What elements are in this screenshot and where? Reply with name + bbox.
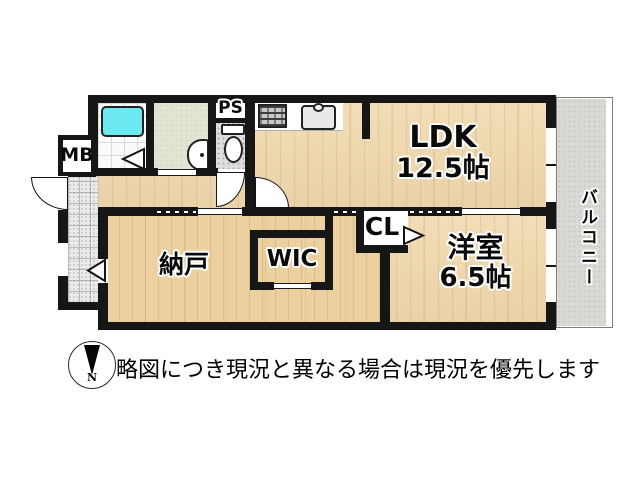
wall-western-left [380, 245, 390, 330]
western-room-label: 洋室 6.5帖 [408, 233, 543, 292]
toilet-tank [221, 124, 245, 135]
entrance-window [58, 241, 68, 278]
wall-mid-d [520, 207, 556, 216]
wall-hall-b [196, 168, 218, 176]
wall-bath-wash [146, 95, 154, 176]
wall-wic-bottom-a [250, 282, 274, 290]
bath-folding-door-icon [118, 147, 146, 171]
washroom-door-opening [158, 169, 196, 176]
storage-sliding-opening [155, 207, 198, 216]
western-room-size: 6.5帖 [408, 264, 543, 293]
balcony-label: バルコニー [568, 158, 596, 318]
wic-opening [274, 283, 311, 289]
floor-plan: LDK 12.5帖 洋室 6.5帖 納戸 WIC CL PS MB バルコニー … [0, 0, 640, 480]
wall-top [88, 95, 556, 103]
storage-window-opening [198, 208, 242, 215]
ldk-size: 12.5帖 [368, 154, 518, 184]
meter-box-label: MB [58, 145, 96, 166]
washbasin-drain [200, 153, 204, 157]
pipe-space-label: PS [211, 99, 250, 118]
stove-icon [258, 104, 287, 128]
wall-bottom [98, 322, 556, 330]
closet-label: CL [358, 213, 406, 241]
partition-window [462, 208, 520, 215]
compass-north-label: N [85, 371, 99, 384]
bathtub-icon [101, 106, 144, 137]
washbasin-icon [187, 139, 209, 171]
western-room-name: 洋室 [408, 233, 543, 264]
ldk-name: LDK [368, 121, 518, 154]
wall-wic-bottom-b [311, 282, 333, 290]
ldk-window [546, 126, 556, 204]
disclaimer-text: 略図につき現況と異なる場合は現況を優先します [116, 352, 600, 384]
wall-entrance-bottom [58, 302, 106, 310]
toilet-icon [224, 136, 243, 163]
storage-door-arrow-icon [85, 257, 108, 284]
western-room-window [546, 227, 556, 304]
wall-mid-b [242, 207, 332, 216]
entry-door-arc [31, 177, 68, 210]
faucet-icon [313, 103, 324, 112]
storage-room-label: 納戸 [136, 251, 232, 279]
mid-sliding-opening-2 [408, 207, 462, 216]
ldk-label: LDK 12.5帖 [368, 121, 518, 184]
wic-label: WIC [248, 247, 336, 272]
wall-wic-top [250, 230, 333, 238]
